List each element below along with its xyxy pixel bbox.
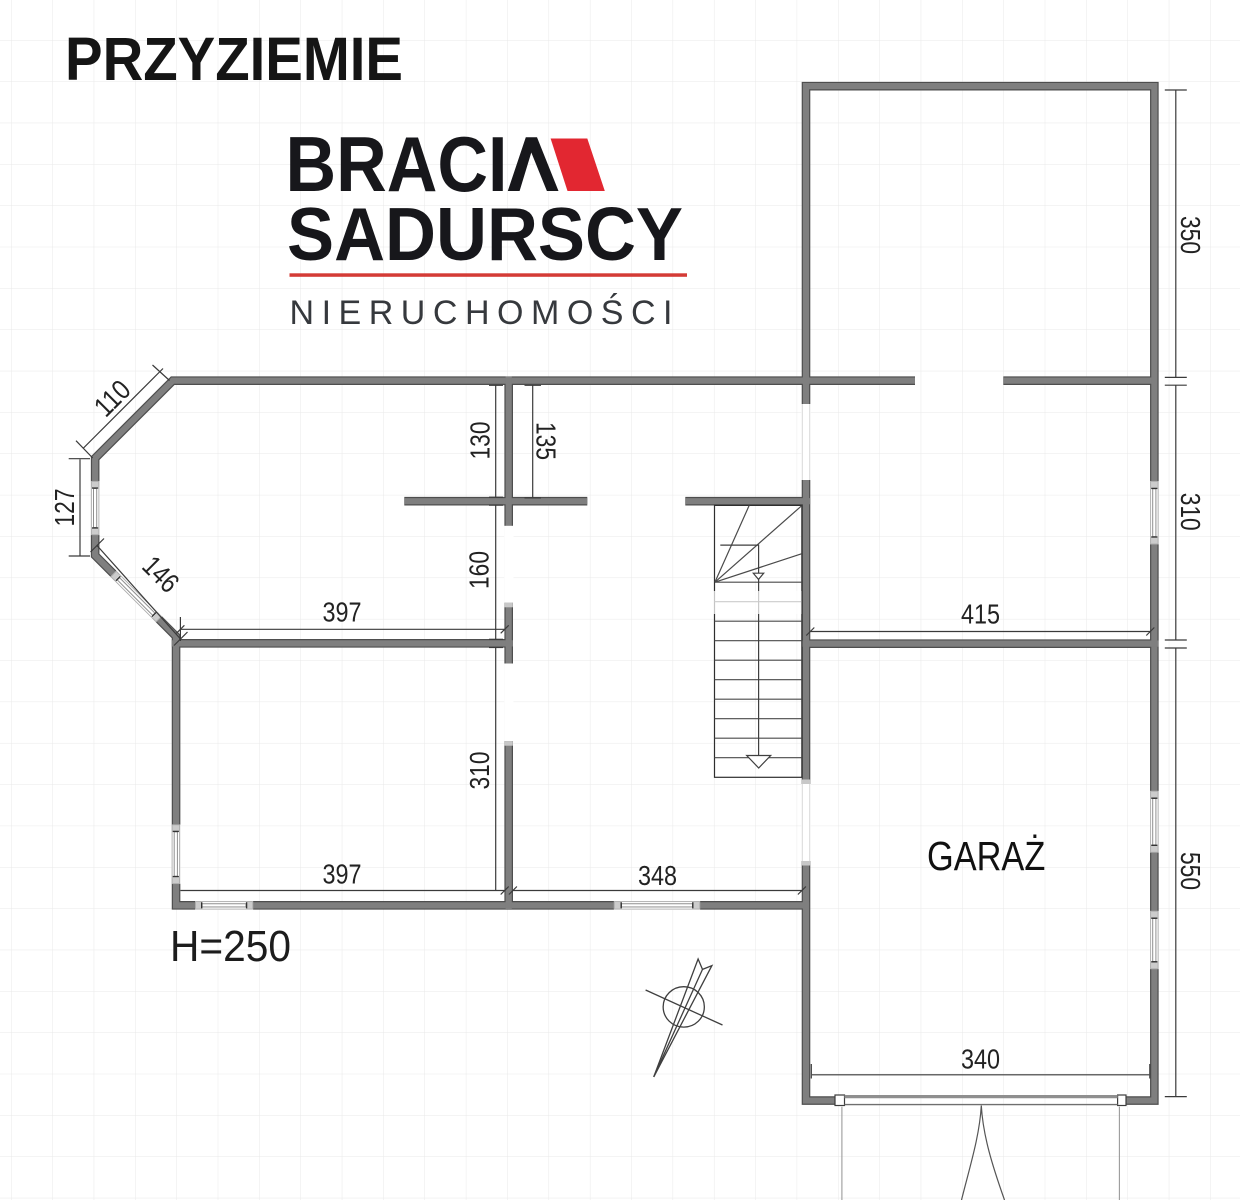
- svg-text:415: 415: [961, 599, 1000, 630]
- svg-text:550: 550: [1175, 852, 1206, 890]
- svg-text:340: 340: [961, 1044, 1000, 1075]
- svg-text:310: 310: [464, 752, 495, 790]
- svg-text:127: 127: [49, 489, 80, 527]
- svg-text:PRZYZIEMIE: PRZYZIEMIE: [65, 25, 403, 93]
- svg-text:397: 397: [323, 597, 362, 628]
- svg-text:350: 350: [1175, 216, 1206, 254]
- svg-text:348: 348: [638, 860, 677, 891]
- svg-text:NIERUCHOMOŚCI: NIERUCHOMOŚCI: [290, 293, 673, 332]
- svg-text:GARAŻ: GARAŻ: [927, 833, 1045, 879]
- svg-text:310: 310: [1175, 493, 1206, 531]
- svg-text:397: 397: [323, 859, 362, 890]
- svg-text:160: 160: [464, 551, 495, 589]
- svg-text:130: 130: [465, 422, 496, 460]
- svg-text:H=250: H=250: [170, 922, 291, 971]
- svg-text:SADURSCY: SADURSCY: [287, 192, 683, 276]
- svg-text:135: 135: [531, 422, 562, 460]
